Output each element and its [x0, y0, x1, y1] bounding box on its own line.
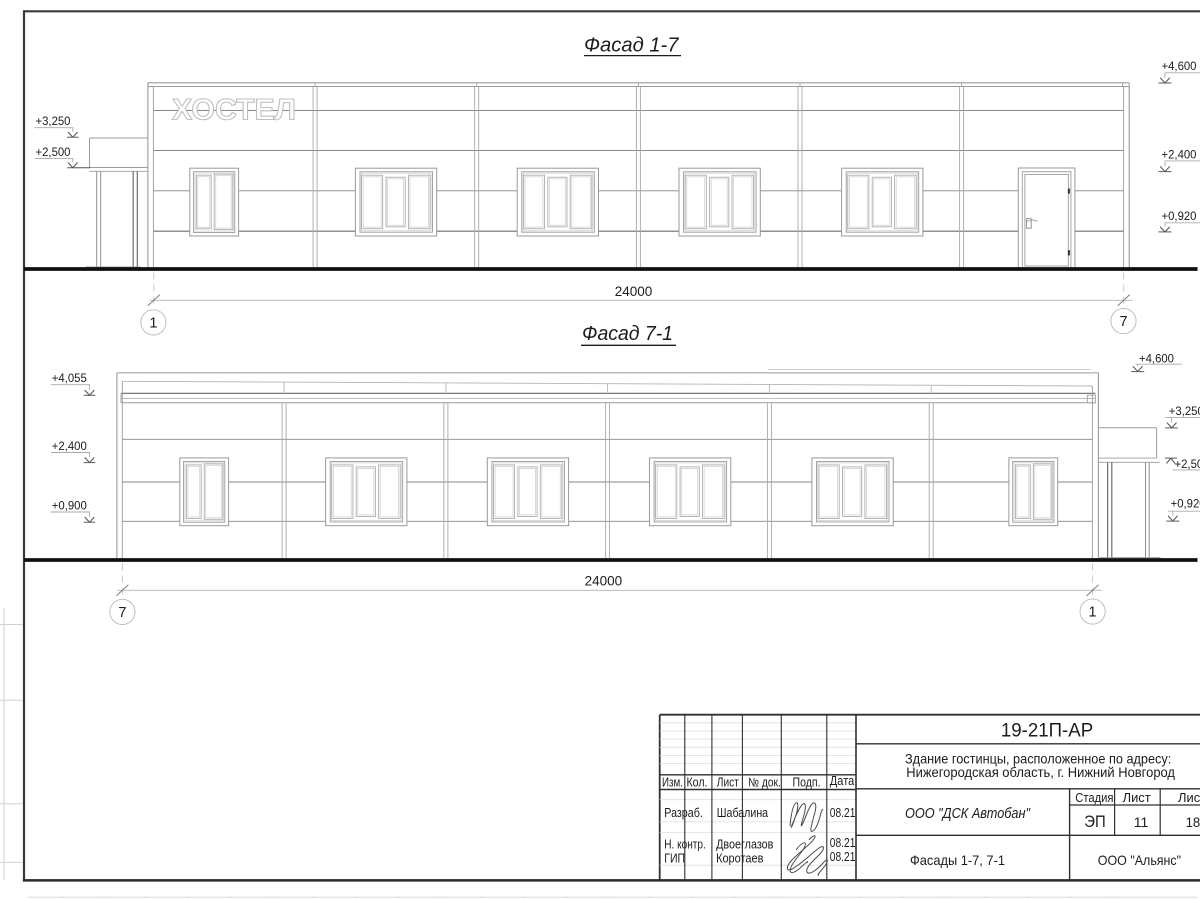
svg-text:08.21: 08.21	[830, 836, 856, 850]
svg-text:11: 11	[1134, 814, 1149, 830]
svg-text:Дата: Дата	[830, 774, 855, 788]
svg-text:+0,920: +0,920	[1162, 210, 1197, 223]
svg-text:Изм.: Изм.	[662, 776, 683, 790]
svg-text:Коротаев: Коротаев	[716, 852, 764, 866]
svg-text:Н. контр.: Н. контр.	[664, 838, 706, 852]
svg-text:Разраб.: Разраб.	[664, 806, 703, 820]
svg-text:Лист: Лист	[717, 776, 739, 790]
svg-text:+3,250: +3,250	[36, 115, 71, 128]
svg-text:+2,400: +2,400	[52, 440, 87, 453]
svg-text:Стадия: Стадия	[1075, 790, 1113, 805]
svg-text:+0,900: +0,900	[52, 499, 87, 512]
svg-text:18: 18	[1186, 814, 1200, 830]
svg-text:19-21П-АР: 19-21П-АР	[1001, 720, 1093, 742]
svg-text:+4,600: +4,600	[1162, 60, 1197, 73]
svg-text:+2,500: +2,500	[1175, 458, 1200, 471]
svg-text:ЭП: ЭП	[1084, 812, 1105, 831]
svg-text:+0,920: +0,920	[1171, 498, 1200, 511]
svg-text:08.21: 08.21	[830, 850, 856, 864]
svg-text:№ док.: № док.	[748, 776, 781, 790]
svg-text:+2,500: +2,500	[36, 146, 71, 159]
svg-text:Кол.: Кол.	[687, 776, 708, 790]
svg-text:7: 7	[118, 605, 126, 621]
svg-text:+3,250: +3,250	[1169, 405, 1200, 418]
svg-text:Листов: Листов	[1178, 790, 1200, 805]
svg-text:Фасад 1-7: Фасад 1-7	[584, 35, 679, 57]
svg-text:Подп.: Подп.	[793, 776, 821, 790]
svg-text:7: 7	[1119, 314, 1127, 330]
svg-text:+2,400: +2,400	[1162, 148, 1197, 161]
svg-text:Нижегородская область, г. Нижн: Нижегородская область, г. Нижний Новгоро…	[906, 764, 1175, 780]
svg-text:Двоеглазов: Двоеглазов	[716, 838, 774, 852]
svg-text:24000: 24000	[615, 284, 653, 299]
svg-text:+4,600: +4,600	[1139, 352, 1174, 365]
svg-text:1: 1	[1089, 605, 1097, 621]
svg-text:1: 1	[149, 316, 157, 332]
svg-text:24000: 24000	[585, 574, 623, 589]
svg-text:Лист: Лист	[1123, 790, 1151, 805]
svg-text:Фасад 7-1: Фасад 7-1	[582, 323, 673, 345]
svg-text:08.21: 08.21	[830, 806, 856, 820]
svg-text:ООО "Альянс": ООО "Альянс"	[1098, 852, 1181, 868]
svg-text:+4,055: +4,055	[52, 372, 87, 385]
svg-text:ХОСТЕЛ: ХОСТЕЛ	[172, 94, 296, 127]
svg-text:Фасады 1-7, 7-1: Фасады 1-7, 7-1	[910, 852, 1005, 868]
svg-text:ООО "ДСК Автобан": ООО "ДСК Автобан"	[905, 806, 1031, 822]
svg-text:Шабалина: Шабалина	[717, 806, 768, 820]
svg-text:ГИП: ГИП	[664, 852, 685, 866]
